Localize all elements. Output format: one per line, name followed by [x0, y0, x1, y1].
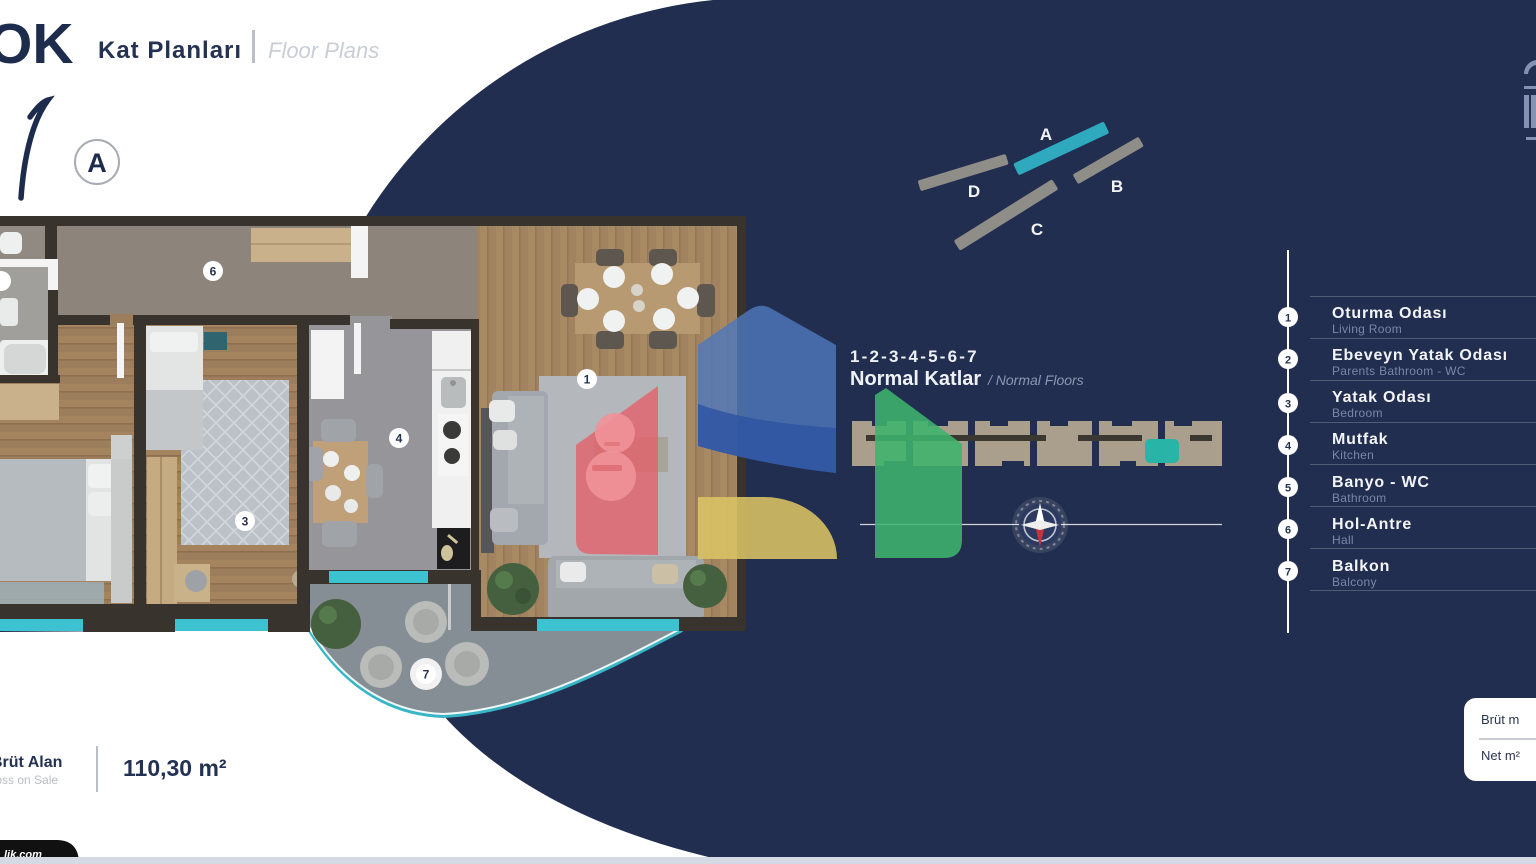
- svg-text:Oturma Odası: Oturma Odası: [1332, 305, 1447, 322]
- svg-text:B: B: [1111, 177, 1123, 196]
- svg-text:Net m²: Net m²: [1481, 748, 1521, 763]
- svg-text:A: A: [87, 148, 107, 178]
- svg-text:Brüt m: Brüt m: [1481, 712, 1519, 727]
- svg-text:Bedroom: Bedroom: [1332, 406, 1383, 420]
- svg-text:Living Room: Living Room: [1332, 322, 1402, 336]
- svg-text:Bathroom: Bathroom: [1332, 491, 1386, 505]
- svg-text:3: 3: [242, 515, 249, 529]
- svg-text:110,30 m²: 110,30 m²: [123, 755, 227, 781]
- svg-text:/ Normal Floors: / Normal Floors: [987, 372, 1084, 388]
- svg-text:2: 2: [1285, 355, 1291, 367]
- svg-text:Mutfak: Mutfak: [1332, 431, 1388, 448]
- svg-text:C: C: [1031, 220, 1043, 239]
- svg-text:1: 1: [584, 373, 591, 387]
- svg-text:Parents Bathroom - WC: Parents Bathroom - WC: [1332, 364, 1466, 378]
- svg-text:Floor Plans: Floor Plans: [268, 38, 379, 63]
- svg-text:4: 4: [396, 432, 403, 446]
- svg-text:Hol-Antre: Hol-Antre: [1332, 516, 1412, 533]
- svg-text:1: 1: [1285, 313, 1291, 325]
- svg-text:1-2-3-4-5-6-7: 1-2-3-4-5-6-7: [850, 347, 979, 366]
- svg-text:Brüt Alan: Brüt Alan: [0, 754, 62, 771]
- svg-text:A: A: [1040, 125, 1052, 144]
- svg-text:Gross on Sale: Gross on Sale: [0, 773, 58, 787]
- svg-text:7: 7: [1285, 567, 1291, 579]
- svg-text:Kat Planları: Kat Planları: [98, 37, 242, 64]
- svg-text:Banyo - WC: Banyo - WC: [1332, 474, 1430, 491]
- svg-text:Ebeveyn Yatak Odası: Ebeveyn Yatak Odası: [1332, 347, 1508, 364]
- svg-text:Yatak Odası: Yatak Odası: [1332, 389, 1432, 406]
- svg-text:5: 5: [1285, 483, 1291, 495]
- svg-text:Balkon: Balkon: [1332, 558, 1390, 575]
- svg-text:4: 4: [1285, 441, 1292, 453]
- svg-text:6: 6: [1285, 525, 1291, 537]
- svg-text:Hall: Hall: [1332, 533, 1354, 547]
- svg-text:D: D: [968, 182, 980, 201]
- svg-text:Normal Katlar: Normal Katlar: [850, 368, 981, 390]
- svg-text:7: 7: [423, 668, 430, 682]
- svg-text:OK: OK: [0, 12, 74, 76]
- svg-text:3: 3: [1285, 399, 1291, 411]
- svg-text:6: 6: [210, 265, 217, 279]
- svg-text:Kitchen: Kitchen: [1332, 448, 1374, 462]
- svg-text:Balcony: Balcony: [1332, 575, 1377, 589]
